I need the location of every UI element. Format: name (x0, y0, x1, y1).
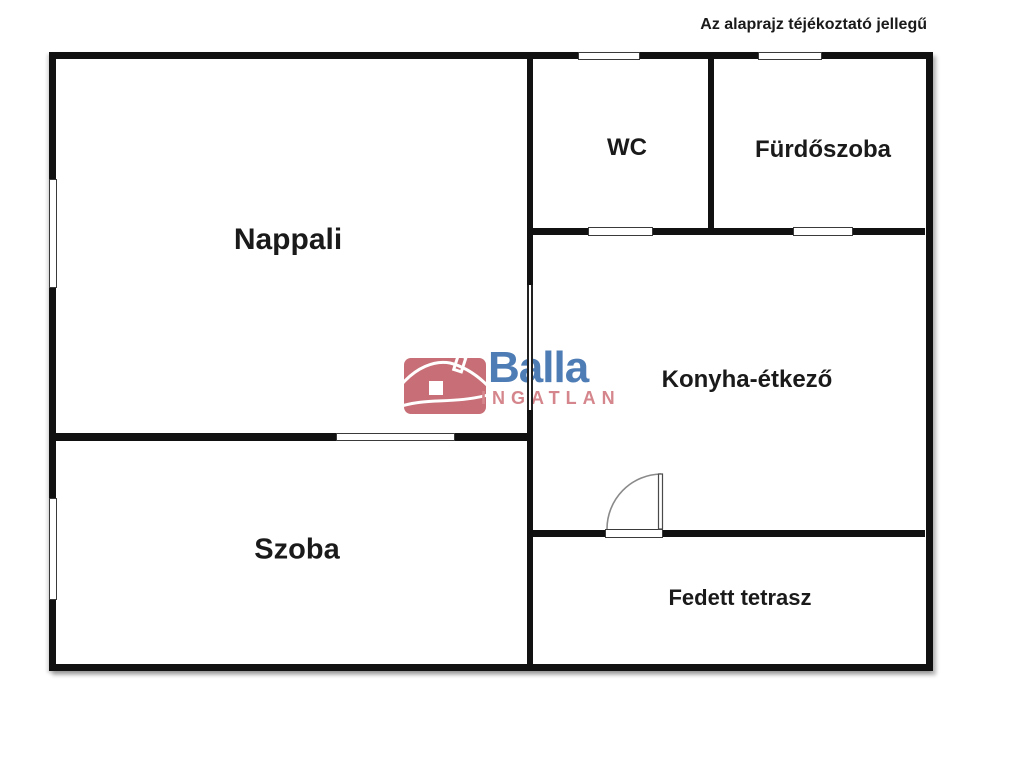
window-nappali (49, 179, 57, 288)
door-opening-wc (588, 227, 653, 236)
opening-nappali-konyha (527, 285, 533, 410)
window-furdoszoba (758, 52, 822, 60)
floorplan-canvas: Az alaprajz téjékoztató jellegű Balla IN… (0, 0, 1021, 768)
room-label-furdoszoba: Fürdőszoba (755, 136, 891, 164)
wall-konyha-terasz (533, 530, 925, 537)
door-opening-furdoszoba (793, 227, 853, 236)
door-opening-terasz (605, 529, 663, 538)
wall-nappali-szoba (56, 433, 527, 441)
room-label-konyha-etkezo: Konyha-étkező (662, 366, 833, 394)
disclaimer-note: Az alaprajz téjékoztató jellegű (700, 16, 927, 34)
window-wc (578, 52, 640, 60)
opening-nappali-szoba (336, 433, 455, 441)
room-label-nappali: Nappali (234, 223, 342, 257)
wall-center-lower (527, 410, 533, 664)
room-label-fedett-terasz: Fedett tetrasz (668, 585, 811, 611)
room-label-szoba: Szoba (254, 534, 339, 567)
window-szoba (49, 498, 57, 600)
room-label-wc: WC (607, 134, 647, 162)
wall-wc-furdoszoba (708, 59, 714, 228)
wall-center-upper (527, 59, 533, 285)
